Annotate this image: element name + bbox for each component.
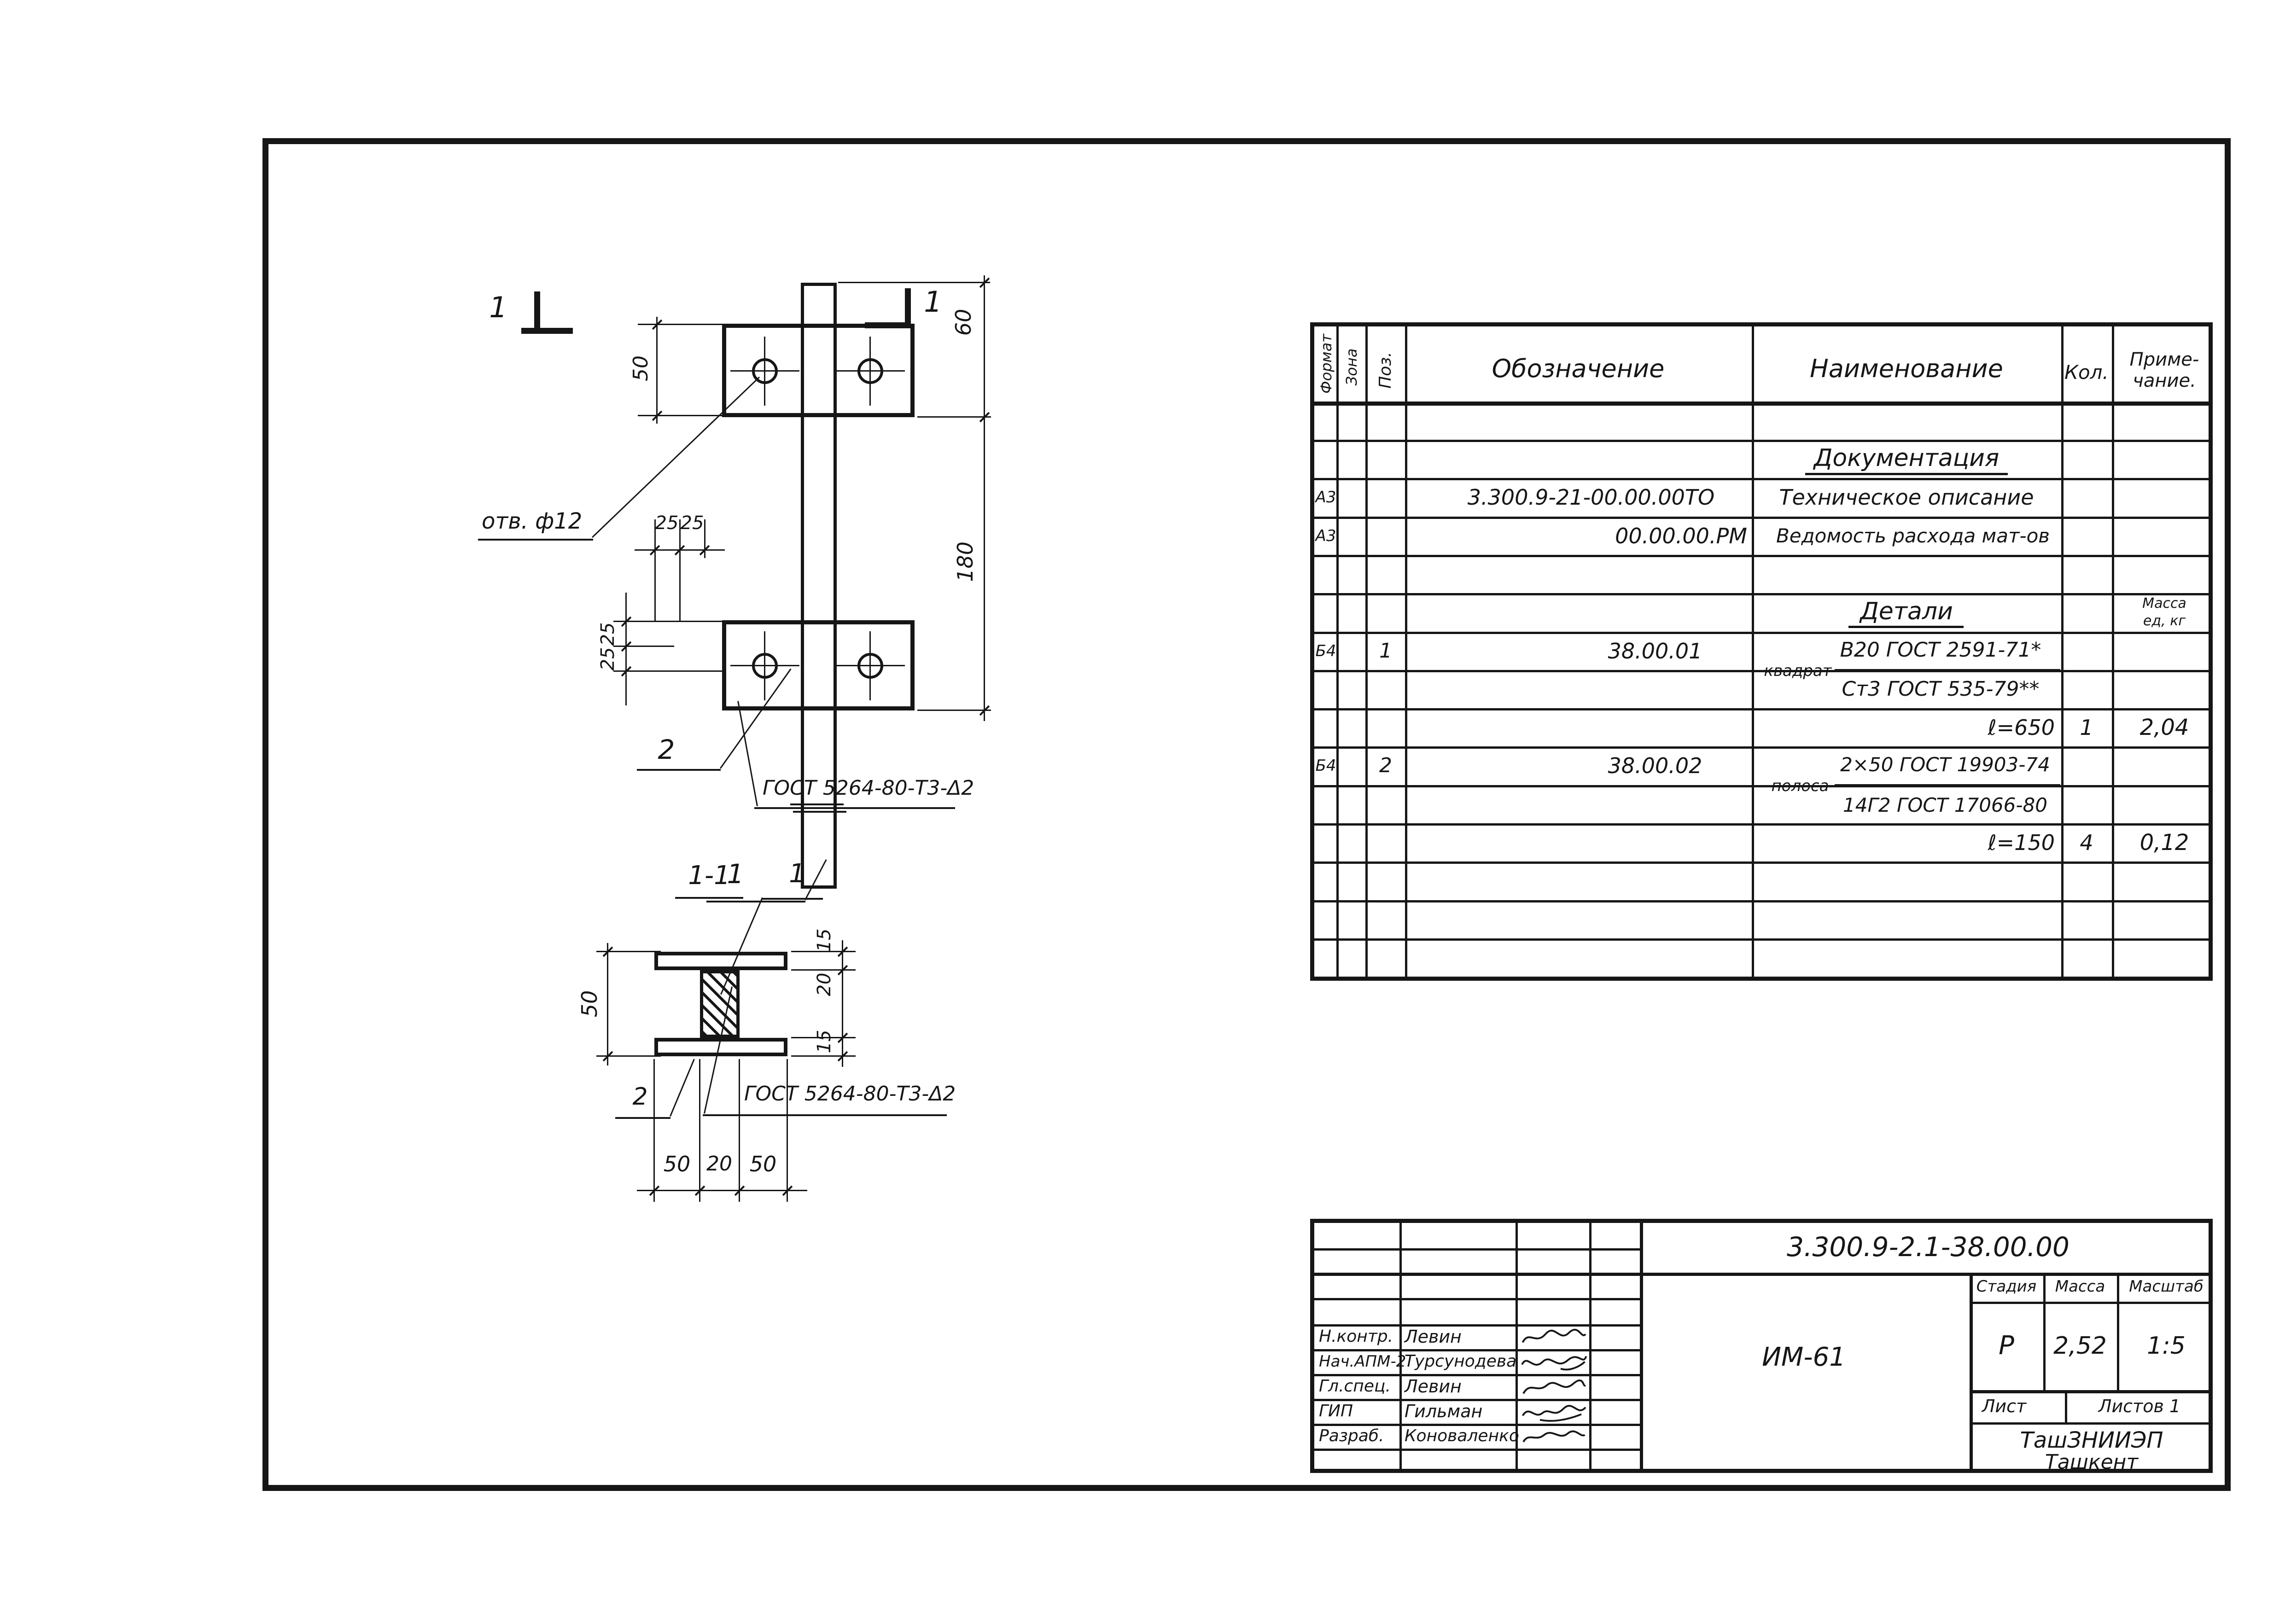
tb-role: Нач.АПМ-2 [1319, 1354, 1406, 1369]
cell-material-top: 2×50 ГОСТ 19903-74 [1840, 755, 2050, 774]
dim-text: 25 [599, 623, 617, 646]
section-underline [1848, 626, 1964, 628]
hole-axis [869, 337, 871, 406]
dim-line [656, 317, 658, 424]
ext-line [613, 646, 674, 647]
hole-axis [869, 631, 871, 700]
hole-axis [764, 631, 765, 700]
stage-label: Стадия [1976, 1279, 2036, 1294]
tb-grid-line [1314, 1248, 1641, 1251]
tb-grid-line [2117, 1273, 2119, 1393]
ext-line [791, 969, 856, 971]
cell-qty: 1 [2080, 717, 2093, 738]
table-grid-line [1314, 938, 2209, 941]
tb-grid-line [1314, 1324, 1641, 1327]
table-grid-line [1314, 900, 2209, 902]
cell-format: Б4 [1316, 643, 1336, 659]
tb-grid-line [1314, 1374, 1641, 1376]
title-block: 3.300.9-2.1-38.00.00 Н.контр. Левин Нач.… [1310, 1219, 2213, 1473]
cell-material-bottom: Ст3 ГОСТ 535-79** [1842, 679, 2040, 699]
hole-axis [764, 337, 765, 406]
table-grid-line [1314, 746, 2209, 749]
dim-text: 180 [955, 541, 976, 582]
table-grid-line [1314, 402, 2209, 406]
dim-text: 25 [599, 647, 617, 671]
dim-text: 50 [750, 1153, 777, 1175]
dim-line [625, 593, 627, 705]
tb-grid-line [1970, 1302, 2209, 1304]
cut-label-right: 1 [924, 288, 942, 316]
drawing-sheet: 1 1 50 [0, 0, 2291, 1624]
dim-line [607, 943, 608, 1065]
scale-value: 1:5 [2147, 1334, 2186, 1358]
tb-grid-line [2043, 1273, 2046, 1393]
col-header-note: Приме- [2130, 350, 2199, 369]
section-title: 1-1 [688, 863, 730, 889]
pos-label-plate: 2 [632, 1085, 647, 1109]
ext-line [653, 1059, 655, 1202]
tb-role: ГИП [1319, 1403, 1353, 1420]
ext-line [787, 1059, 788, 1202]
col-header-zone: Зона [1344, 349, 1359, 386]
note-underline [637, 769, 721, 771]
tb-grid-line [2065, 1390, 2067, 1422]
scale-label: Масштаб [2129, 1279, 2204, 1294]
table-grid-line [1314, 478, 2209, 480]
ext-line [791, 1055, 856, 1057]
dim-text: 50 [579, 990, 600, 1018]
col-header-pos: Поз. [1377, 352, 1394, 389]
signature [1519, 1351, 1588, 1374]
mass-col-title: ед, кг [2143, 614, 2186, 628]
dim-line [984, 417, 985, 721]
dim-line [842, 940, 843, 1067]
dim-text: 15 [815, 929, 834, 952]
ext-line [699, 1059, 700, 1202]
col-header-note: чание. [2133, 372, 2196, 390]
tb-grid-line [1589, 1223, 1591, 1469]
tb-name: Левин [1405, 1328, 1462, 1345]
cell-qty: 4 [2080, 832, 2093, 853]
org-city: Ташкент [2045, 1452, 2138, 1473]
cell-material-top: В20 ГОСТ 2591-71* [1840, 640, 2041, 660]
hole-note: отв. ф12 [482, 510, 582, 532]
dim-line [984, 275, 985, 424]
tb-grid-line [1314, 1449, 1641, 1451]
col-header-designation: Обозначение [1492, 356, 1665, 381]
ext-line [838, 282, 990, 283]
dim-text: 25 [681, 514, 704, 532]
cell-pos: 2 [1379, 756, 1392, 776]
dim-text: 20 [815, 973, 834, 996]
tb-grid-line [1314, 1424, 1641, 1426]
project-code: ИМ-61 [1762, 1345, 1846, 1370]
dim-text: 20 [706, 1154, 732, 1174]
tb-name: Коноваленко [1405, 1428, 1519, 1444]
tb-grid-line [1970, 1390, 2209, 1393]
cut-mark-left-base [521, 328, 573, 334]
table-grid-line [1314, 632, 2209, 634]
ext-line [613, 621, 724, 622]
tb-name: Турсунодева [1405, 1353, 1516, 1370]
top-strip [654, 952, 787, 970]
tb-grid-line [1314, 1349, 1641, 1351]
ext-line [638, 324, 725, 325]
spec-table: Формат Зона Поз. Обозначение Наименовани… [1310, 322, 2213, 981]
cell-format: А3 [1316, 528, 1336, 544]
table-grid-line [1314, 517, 2209, 519]
tb-name: Гильман [1405, 1403, 1482, 1420]
break-mark [790, 803, 844, 805]
cut-mark-right [905, 288, 911, 328]
table-grid-line [1314, 670, 2209, 672]
sheets-label: Листов 1 [2099, 1397, 2180, 1415]
note-underline [478, 539, 593, 541]
table-grid-line [1314, 593, 2209, 595]
cell-designation: 38.00.01 [1608, 640, 1702, 662]
sheet-label: Лист [1982, 1397, 2026, 1415]
ext-line [654, 519, 656, 622]
ext-line [638, 415, 725, 416]
cell-profile: полоса [1771, 778, 1829, 794]
note-underline [754, 807, 955, 809]
cell-name: Ведомость расхода мат-ов [1776, 526, 2050, 546]
cell-pos: 1 [1379, 641, 1392, 661]
tb-grid-line [1399, 1223, 1402, 1469]
cell-material-bottom: 14Г2 ГОСТ 17066-80 [1843, 796, 2047, 815]
mass-value: 2,52 [2053, 1334, 2107, 1358]
col-header-format: Формат [1319, 334, 1334, 394]
cell-profile: квадрат [1764, 663, 1831, 679]
ext-line [917, 416, 991, 418]
table-grid-line [1314, 785, 2209, 787]
tb-grid-line [1314, 1298, 1641, 1300]
tb-role: Разраб. [1319, 1428, 1384, 1444]
col-header-name: Наименование [1810, 356, 2003, 381]
table-grid-line [1314, 555, 2209, 557]
cell-designation: 00.00.00.РМ [1615, 525, 1747, 547]
pos-label-plate: 2 [658, 736, 675, 763]
dim-line [637, 1190, 807, 1191]
section-title-docs: Документация [1814, 446, 1999, 470]
title-underline [675, 897, 743, 899]
tb-role: Н.контр. [1319, 1328, 1393, 1345]
section-underline [1805, 473, 2008, 475]
note-underline [706, 901, 805, 902]
pos-label-bar: 1 [789, 861, 805, 887]
signature [1519, 1401, 1588, 1423]
signature [1519, 1426, 1588, 1448]
tb-grid-line [1640, 1223, 1643, 1469]
fraction-bar [1835, 669, 2060, 672]
weld-note: ГОСТ 5264-80-Т3-Δ2 [763, 778, 974, 798]
cell-designation: 38.00.02 [1608, 755, 1702, 776]
table-grid-line [1314, 708, 2209, 710]
table-grid-line [1314, 823, 2209, 826]
cell-length: ℓ=650 [1988, 717, 2055, 738]
table-grid-line [1314, 861, 2209, 864]
weld-note: ГОСТ 5264-80-Т3-Δ2 [744, 1084, 956, 1104]
dim-text: 60 [953, 309, 974, 336]
table-grid-line [1336, 326, 1339, 977]
dim-text: 15 [815, 1030, 834, 1054]
note-underline [615, 1117, 670, 1119]
signature [1519, 1327, 1588, 1349]
col-header-qty: Кол. [2064, 363, 2109, 382]
ext-line [739, 1059, 740, 1202]
cut-label-left: 1 [489, 293, 507, 322]
dim-text: 25 [655, 514, 679, 532]
note-underline [762, 898, 823, 900]
ext-line [613, 670, 724, 672]
org-name: ТашЗНИИЭП [2020, 1429, 2163, 1451]
table-grid-line [1405, 326, 1407, 977]
table-grid-line [1314, 440, 2209, 442]
cell-length: ℓ=150 [1988, 832, 2055, 853]
tb-grid-line [1314, 1273, 2209, 1276]
table-grid-line [1752, 326, 1754, 977]
ext-line [679, 519, 681, 622]
ext-line [917, 710, 991, 711]
fraction-bar [1835, 784, 2060, 787]
tb-role: Гл.спец. [1319, 1378, 1391, 1395]
mass-label: Масса [2055, 1279, 2105, 1294]
table-grid-line [2112, 326, 2114, 977]
table-grid-line [2061, 326, 2064, 977]
signature [1519, 1376, 1588, 1398]
dim-text: 50 [631, 355, 651, 381]
tb-grid-line [1970, 1422, 2209, 1425]
cell-format: А3 [1316, 489, 1336, 505]
doc-number: 3.300.9-2.1-38.00.00 [1787, 1234, 2069, 1260]
cell-format: Б4 [1316, 758, 1336, 774]
cell-mass: 0,12 [2140, 832, 2189, 854]
section-title-details: Детали [1860, 600, 1953, 623]
ext-line [704, 519, 705, 558]
table-grid-line [1365, 326, 1368, 977]
cell-name: Техническое описание [1779, 487, 2034, 508]
cell-designation: 3.300.9-21-00.00.00ТО [1468, 487, 1714, 508]
mass-col-title: Масса [2142, 597, 2186, 611]
stage-value: Р [1999, 1333, 2014, 1359]
note-underline [703, 1114, 947, 1116]
tb-name: Левин [1405, 1378, 1462, 1395]
cell-mass: 2,04 [2140, 716, 2189, 739]
dim-text: 50 [664, 1153, 691, 1175]
bar-section [700, 970, 740, 1038]
break-mark [793, 811, 846, 813]
